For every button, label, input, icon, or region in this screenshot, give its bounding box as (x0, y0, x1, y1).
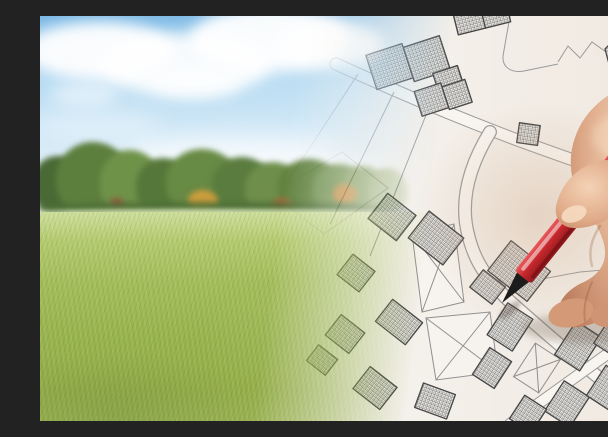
cloud (150, 68, 240, 98)
cloud (50, 82, 120, 106)
cloud-wisp (40, 112, 160, 138)
photo-composite: Empty green meadow with a tree line and … (40, 16, 608, 421)
grass-field (40, 212, 608, 421)
sky (40, 16, 608, 213)
cloud (275, 22, 385, 68)
autumn-bush (333, 184, 357, 204)
meadow-photo (40, 16, 608, 421)
